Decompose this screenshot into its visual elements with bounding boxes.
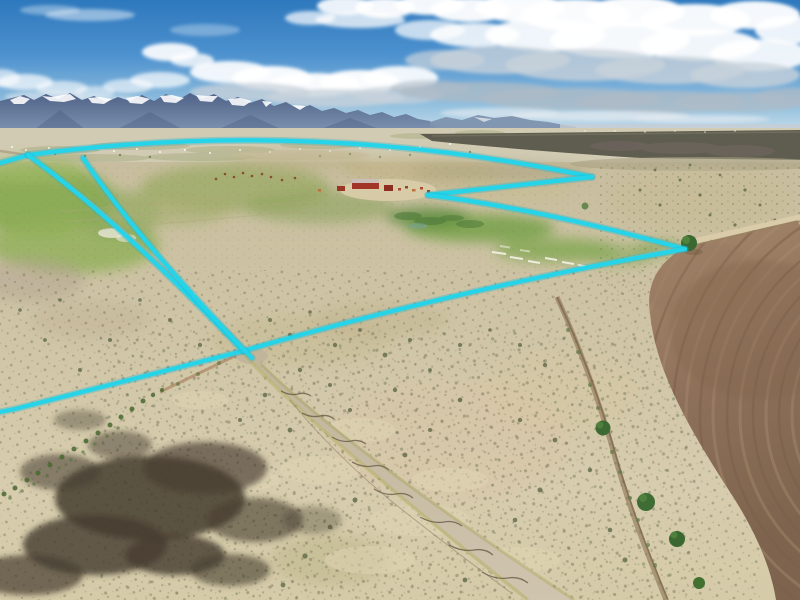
red-outbuilding bbox=[337, 186, 345, 191]
photo-canvas bbox=[0, 0, 800, 600]
red-shed bbox=[384, 185, 393, 191]
aerial-property-photo bbox=[0, 0, 800, 600]
